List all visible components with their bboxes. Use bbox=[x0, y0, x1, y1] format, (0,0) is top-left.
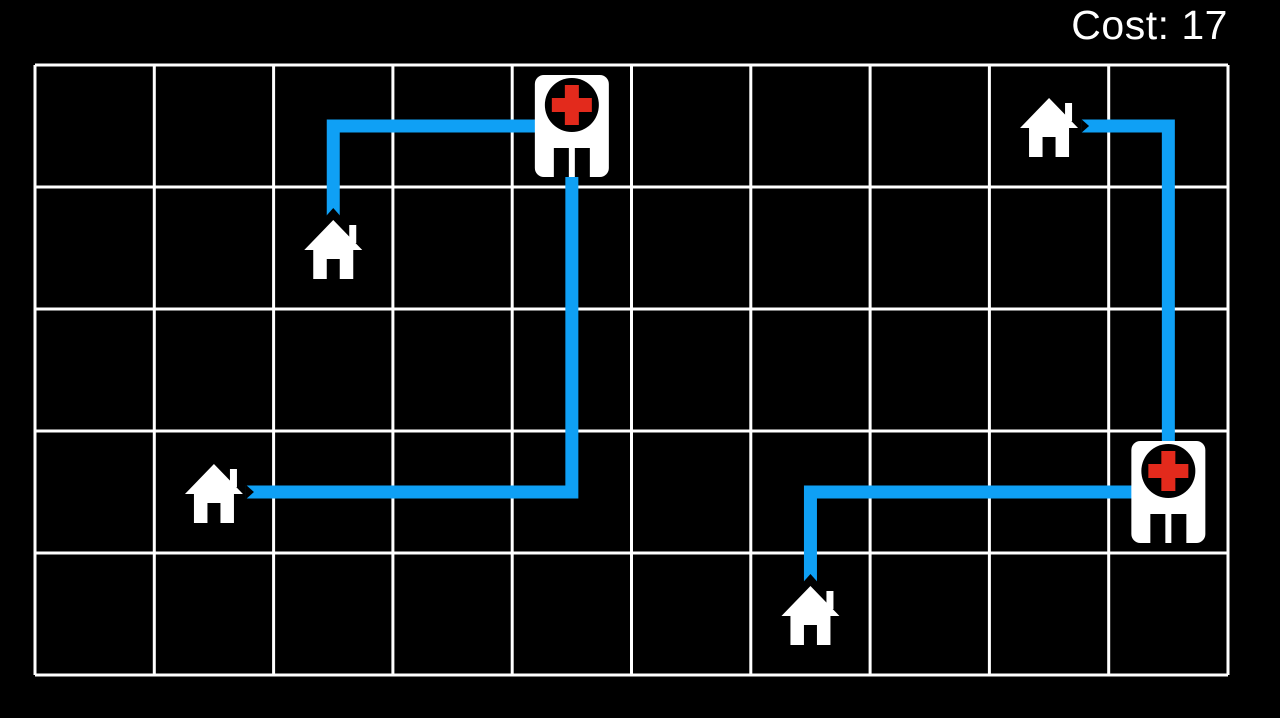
cost-label: Cost: 17 bbox=[1071, 2, 1228, 48]
game-board[interactable] bbox=[0, 0, 1280, 718]
grid-lines bbox=[35, 65, 1228, 675]
cost-display: Cost: 17 bbox=[1071, 2, 1228, 49]
house-4[interactable] bbox=[781, 586, 839, 645]
house-3[interactable] bbox=[185, 464, 243, 523]
house-1[interactable] bbox=[1020, 98, 1078, 157]
route-house-4-to-hospital-2[interactable] bbox=[803, 492, 1168, 582]
hospital-door-left bbox=[1150, 514, 1165, 543]
game-screen: Cost: 17 bbox=[0, 0, 1280, 718]
hospital-door-left bbox=[554, 148, 569, 177]
hospital-1[interactable] bbox=[535, 75, 609, 177]
hospital-door-right bbox=[575, 148, 590, 177]
route-house-1-to-hospital-2[interactable] bbox=[1081, 119, 1168, 492]
hospital-door-right bbox=[1171, 514, 1186, 543]
hospital-2[interactable] bbox=[1131, 441, 1205, 543]
route-house-3-to-hospital-1[interactable] bbox=[246, 126, 572, 499]
house-2[interactable] bbox=[304, 220, 362, 279]
